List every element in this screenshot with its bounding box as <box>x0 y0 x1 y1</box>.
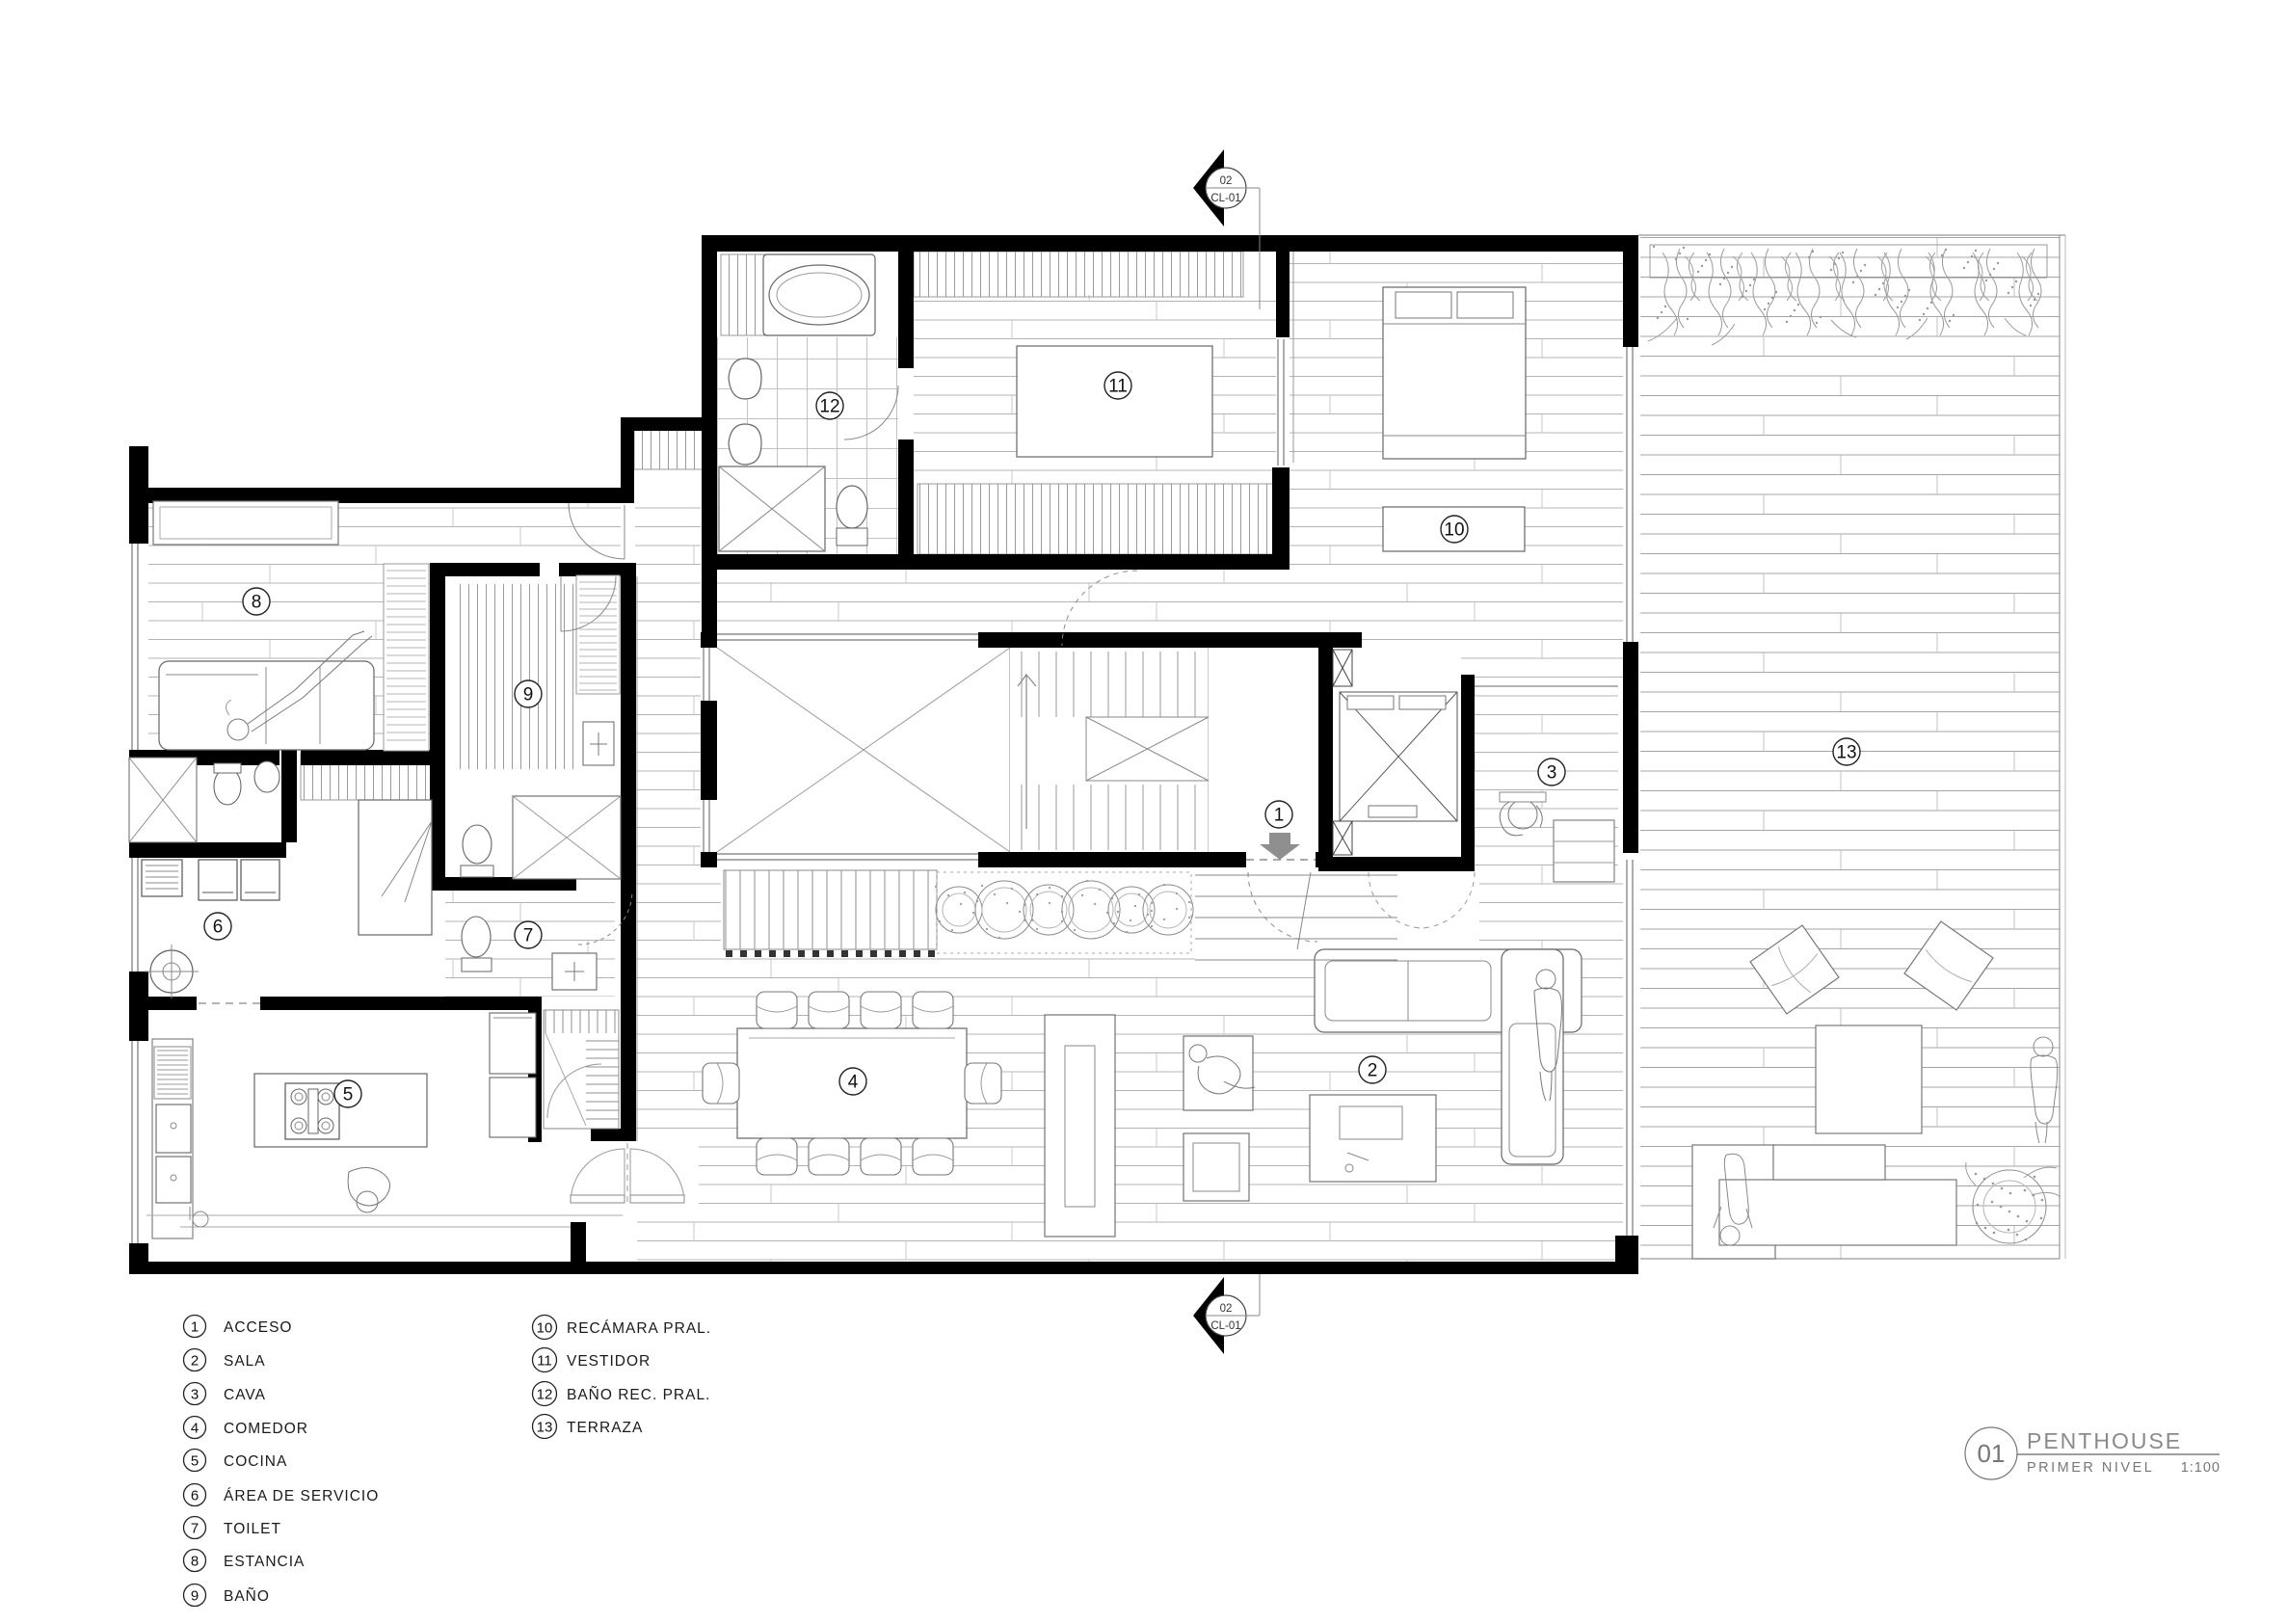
svg-text:COMEDOR: COMEDOR <box>224 1421 308 1437</box>
svg-text:10: 10 <box>537 1320 553 1337</box>
svg-text:4: 4 <box>191 1421 199 1437</box>
svg-text:TOILET: TOILET <box>224 1521 281 1537</box>
svg-text:PRIMER NIVEL: PRIMER NIVEL <box>2027 1460 2154 1476</box>
svg-text:7: 7 <box>523 926 534 946</box>
svg-text:6: 6 <box>213 918 224 938</box>
svg-text:13: 13 <box>537 1420 553 1436</box>
svg-text:BAÑO REC. PRAL.: BAÑO REC. PRAL. <box>567 1387 710 1403</box>
svg-text:TERRAZA: TERRAZA <box>567 1420 643 1436</box>
svg-text:11: 11 <box>1108 377 1128 397</box>
svg-text:9: 9 <box>523 685 534 706</box>
svg-text:2: 2 <box>191 1353 199 1370</box>
svg-text:9: 9 <box>191 1588 199 1605</box>
svg-text:10: 10 <box>1444 520 1464 541</box>
svg-text:VESTIDOR: VESTIDOR <box>567 1353 651 1370</box>
svg-text:5: 5 <box>343 1085 354 1105</box>
svg-text:3: 3 <box>191 1387 199 1403</box>
svg-text:ACCESO: ACCESO <box>224 1319 292 1336</box>
svg-text:COCINA: COCINA <box>224 1453 287 1470</box>
svg-text:8: 8 <box>252 593 262 613</box>
svg-text:7: 7 <box>191 1521 199 1537</box>
svg-text:ESTANCIA: ESTANCIA <box>224 1554 305 1570</box>
svg-text:1: 1 <box>191 1319 199 1336</box>
svg-text:CL-01: CL-01 <box>1210 1320 1240 1332</box>
svg-text:CAVA: CAVA <box>224 1387 266 1403</box>
svg-text:4: 4 <box>848 1073 859 1093</box>
svg-text:ÁREA DE SERVICIO: ÁREA DE SERVICIO <box>224 1488 379 1504</box>
svg-text:SALA: SALA <box>224 1353 266 1370</box>
svg-text:PENTHOUSE: PENTHOUSE <box>2027 1428 2182 1453</box>
svg-text:01: 01 <box>1978 1439 2006 1468</box>
svg-text:5: 5 <box>191 1453 199 1470</box>
svg-text:1:100: 1:100 <box>2181 1460 2221 1476</box>
svg-text:1: 1 <box>1274 806 1285 826</box>
svg-text:3: 3 <box>1547 763 1557 784</box>
svg-text:02: 02 <box>1220 175 1233 187</box>
svg-text:BAÑO: BAÑO <box>224 1588 270 1605</box>
svg-text:6: 6 <box>191 1488 199 1504</box>
svg-text:12: 12 <box>537 1387 553 1403</box>
svg-text:12: 12 <box>819 397 839 417</box>
svg-text:13: 13 <box>1836 743 1856 763</box>
svg-text:2: 2 <box>1368 1061 1378 1081</box>
svg-text:11: 11 <box>537 1353 552 1370</box>
svg-text:02: 02 <box>1220 1303 1233 1315</box>
svg-text:RECÁMARA PRAL.: RECÁMARA PRAL. <box>567 1320 711 1337</box>
svg-text:8: 8 <box>191 1554 199 1570</box>
svg-text:CL-01: CL-01 <box>1210 193 1240 204</box>
